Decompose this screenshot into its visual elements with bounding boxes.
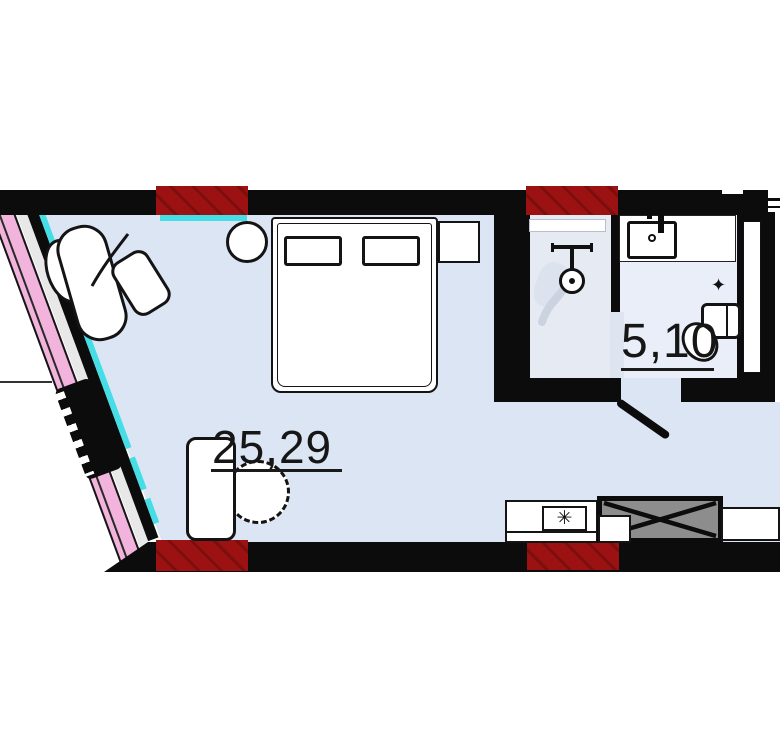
top-wall-notch: [722, 185, 743, 194]
kitchen-counter-right: [721, 507, 780, 541]
red-wall-segment-top-right: [526, 186, 618, 215]
sink-drain: [648, 234, 656, 242]
exterior-bottom: [0, 572, 780, 750]
kitchen-counter-line: [507, 531, 596, 533]
red-wall-segment-top-left: [156, 186, 248, 215]
bathroom-left-wall: [494, 215, 530, 402]
side-table: [226, 221, 268, 263]
exterior-right-strip: [775, 215, 780, 402]
window-top: [160, 215, 247, 221]
red-wall-segment-bottom-left: [156, 540, 248, 571]
shower-head-dot: [569, 278, 575, 284]
bed: [271, 217, 438, 393]
dimension-line: [0, 381, 52, 383]
valve-icon: ✦: [711, 276, 726, 294]
stove-burner-icon: ✳: [557, 509, 573, 528]
stove: ✳: [542, 506, 587, 531]
neighbor-connection-line-1: [763, 198, 780, 201]
faucet-icon: [658, 209, 664, 233]
nightstand: [438, 221, 480, 263]
faucet-handle: [647, 214, 652, 219]
pillow-left: [284, 236, 342, 266]
main-room-area-underline: [211, 469, 342, 472]
floor-plan: ✦ 5,10 25,29 ✳: [0, 0, 780, 750]
lounge-chair-fold-line: [86, 228, 134, 292]
bathroom-bottom-wall-left: [494, 378, 621, 402]
red-wall-segment-bottom-right: [527, 540, 619, 570]
pillow-right: [362, 236, 420, 266]
shower-shelf: [529, 219, 606, 232]
radiator-fins: [54, 391, 94, 477]
kitchen-small-cabinet: [598, 515, 631, 543]
bathroom-area-underline: [621, 368, 714, 371]
bathroom-area-label: 5,10: [621, 318, 718, 366]
main-room-area-label: 25,29: [212, 424, 332, 470]
shower-bar-tick-right: [590, 243, 593, 252]
top-wall: [0, 190, 768, 215]
duct-shaft: [743, 221, 761, 373]
toilet-tank-line: [726, 306, 728, 336]
shower-bar-tick-left: [551, 243, 554, 252]
neighbor-connection-line-2: [763, 206, 780, 208]
